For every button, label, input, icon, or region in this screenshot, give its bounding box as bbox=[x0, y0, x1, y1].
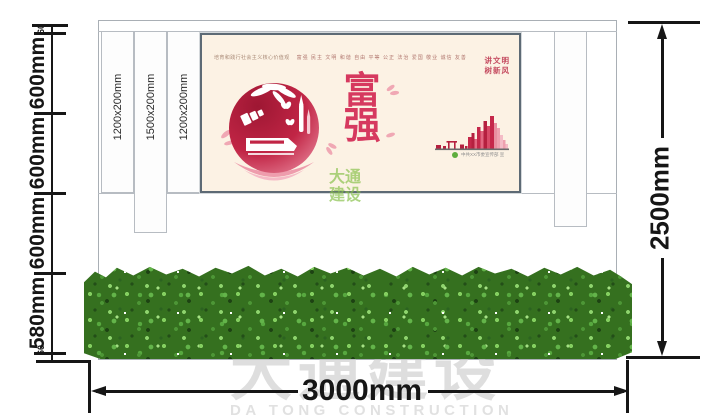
dim-label-600-1: 600mm bbox=[26, 37, 50, 109]
slat-panel-4 bbox=[554, 31, 587, 227]
poster-core-values: 富强 民主 文明 和谐 自由 平等 公正 法治 爱国 敬业 诚信 友善 bbox=[297, 55, 467, 61]
slogan-line-1: 讲文明 bbox=[485, 56, 511, 66]
logo-line-2: 建设 bbox=[322, 187, 368, 205]
arrow-down-icon bbox=[657, 341, 667, 356]
dim-label-60-bottom: 60 bbox=[36, 345, 46, 355]
dim-bracket bbox=[36, 360, 90, 363]
headline-char-1: 富 bbox=[330, 74, 394, 109]
poster-headline: 富 强 bbox=[330, 74, 394, 144]
slat-size-label-1: 1200x200mm bbox=[112, 74, 124, 141]
dim-label-2500: 2500mm bbox=[645, 146, 676, 250]
bottom-dim-line bbox=[96, 390, 298, 393]
slogan-line-2: 树新风 bbox=[485, 66, 511, 76]
slat-size-label-3: 1200x200mm bbox=[178, 74, 190, 141]
dim-label-600-2: 600mm bbox=[26, 117, 50, 189]
poster-slogan: 讲文明 树新风 bbox=[485, 56, 511, 75]
headline-char-2: 强 bbox=[330, 109, 394, 144]
dim-bracket bbox=[626, 360, 629, 413]
dim-label-60-top: 60 bbox=[36, 24, 46, 34]
paper-cut-emblem-icon bbox=[220, 76, 328, 188]
poster-tagline-row: 培育和践行社会主义核心价值观富强 民主 文明 和谐 自由 平等 公正 法治 爱国… bbox=[214, 54, 467, 61]
poster-tagline: 培育和践行社会主义核心价值观 bbox=[214, 55, 290, 61]
leaf-flourish-icon bbox=[390, 90, 399, 95]
dim-tick bbox=[34, 192, 66, 195]
credit-text: 中共XX市委宣传部 宣 bbox=[461, 152, 504, 158]
dim-label-580: 580mm bbox=[26, 277, 50, 349]
green-dot-icon bbox=[452, 152, 458, 158]
bottom-dim-line bbox=[428, 390, 624, 393]
signage-shop-drawing: 1200x200mm 1500x200mm 1200x200mm 培育和践行社会… bbox=[0, 0, 720, 420]
dim-label-600-3: 600mm bbox=[26, 197, 50, 269]
arrow-left-icon bbox=[91, 386, 106, 396]
dim-tick bbox=[626, 356, 700, 359]
hedge-greenery bbox=[84, 263, 632, 359]
logo-line-1: 大通 bbox=[322, 169, 368, 187]
right-dim-line bbox=[661, 258, 664, 348]
arrow-up-icon bbox=[657, 24, 667, 39]
dim-label-3000: 3000mm bbox=[302, 374, 422, 408]
company-logo-watermark: 大通 建设 bbox=[322, 169, 368, 205]
poster-credit: 中共XX市委宣传部 宣 bbox=[452, 152, 504, 158]
dim-tick bbox=[34, 272, 66, 275]
slat-size-label-2: 1500x200mm bbox=[145, 74, 157, 141]
dim-tick bbox=[34, 112, 66, 115]
city-skyline-graphic bbox=[435, 113, 509, 153]
right-dim-line bbox=[661, 32, 664, 138]
